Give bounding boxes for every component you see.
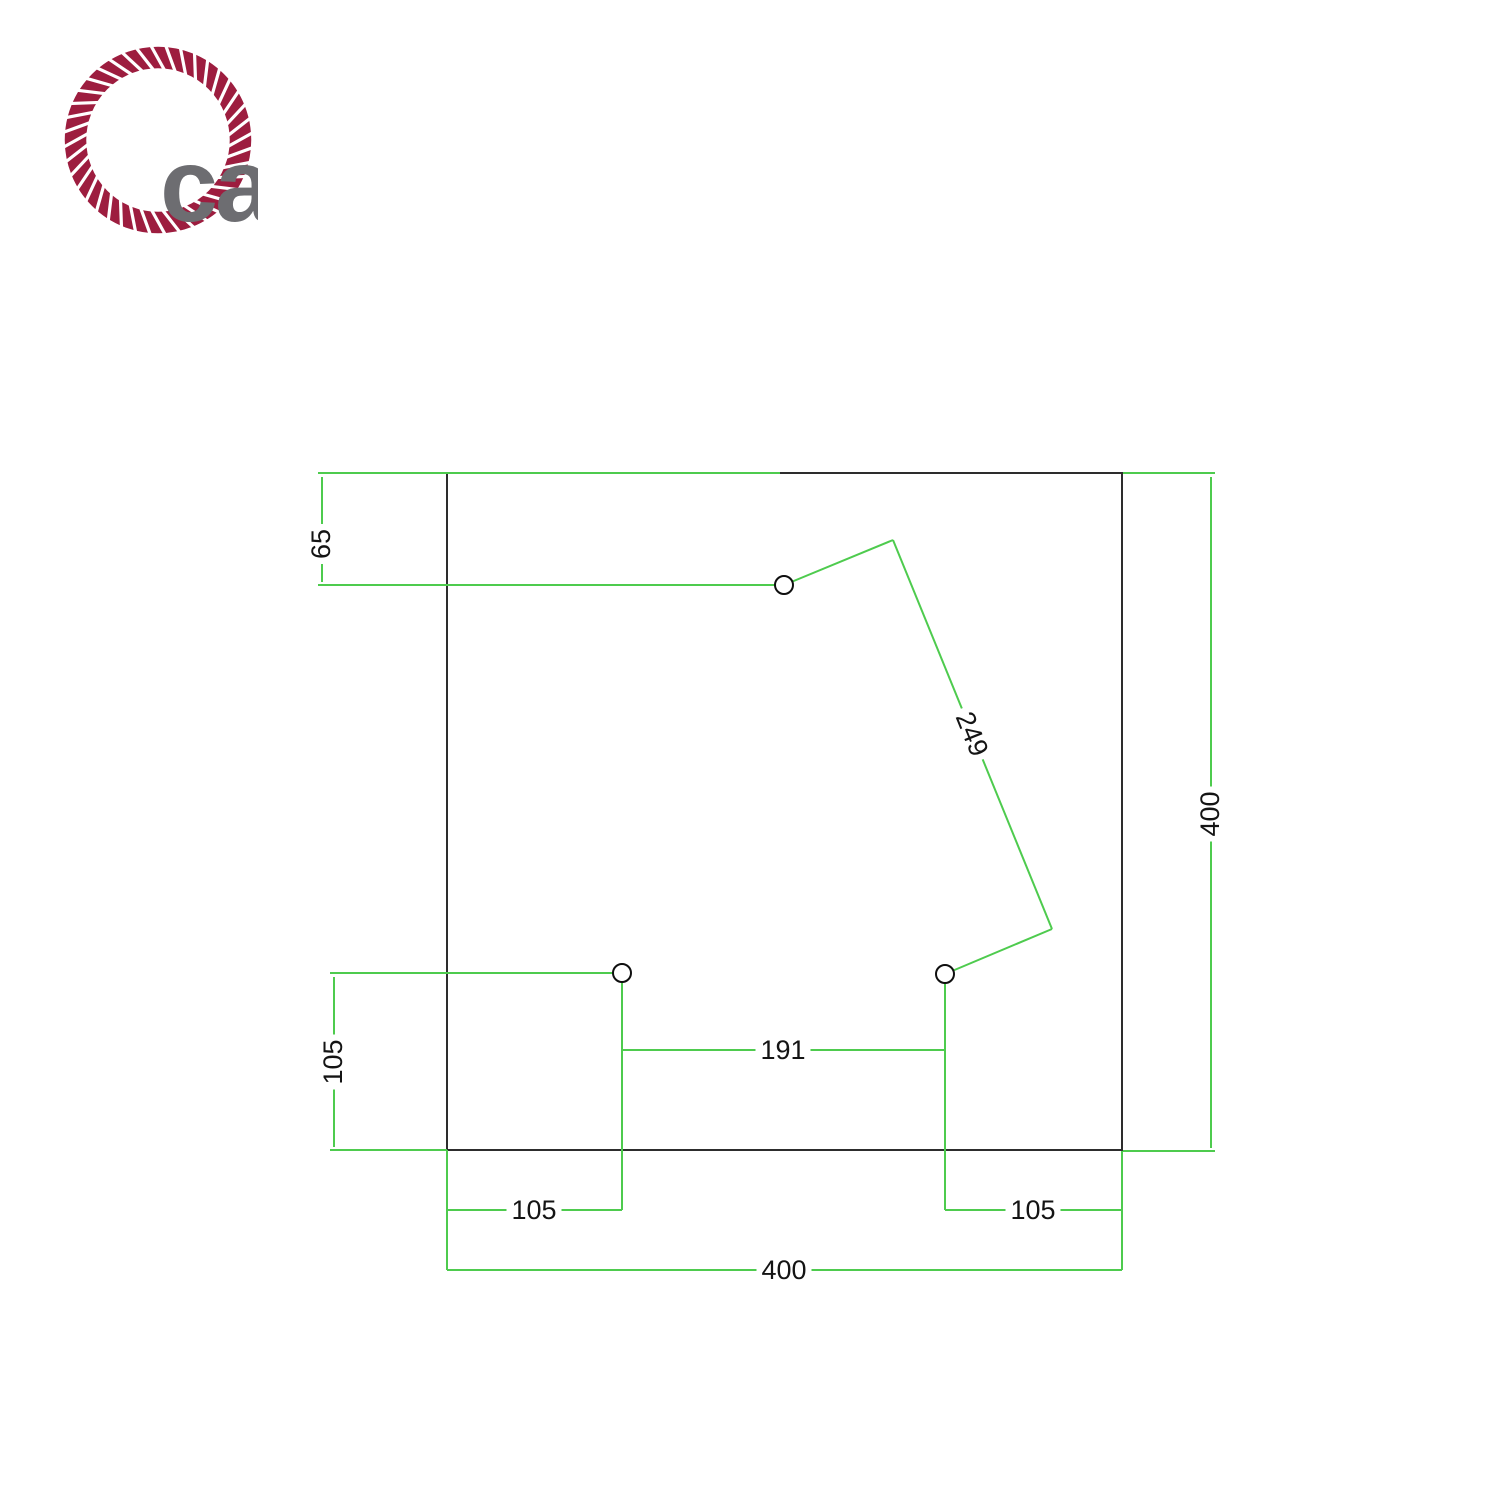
dimension-label: 191 bbox=[760, 1035, 805, 1065]
dimension-label-group: 105 bbox=[1006, 1194, 1061, 1226]
leader-line bbox=[784, 540, 893, 585]
dimension-label-group: 400 bbox=[1194, 787, 1226, 842]
dimension-label-group: 400 bbox=[757, 1254, 812, 1286]
dimension-label: 65 bbox=[306, 529, 336, 559]
dimension-label-group: 191 bbox=[756, 1034, 811, 1066]
hole-marker bbox=[936, 965, 954, 983]
dimension-label: 105 bbox=[511, 1195, 556, 1225]
technical-drawing: 65249400105191105105400 bbox=[0, 0, 1500, 1500]
leader-line bbox=[945, 929, 1052, 974]
dimension-label: 400 bbox=[1195, 791, 1225, 836]
dimension-label: 400 bbox=[761, 1255, 806, 1285]
dimension-label: 105 bbox=[318, 1039, 348, 1084]
dimension-label-group: 105 bbox=[317, 1035, 349, 1090]
hole-marker bbox=[613, 964, 631, 982]
dimension-label-group: 249 bbox=[947, 703, 997, 766]
dimension-label-group: 65 bbox=[305, 524, 337, 564]
dimension-label: 105 bbox=[1010, 1195, 1055, 1225]
hole-marker bbox=[775, 576, 793, 594]
dimension-label-group: 105 bbox=[507, 1194, 562, 1226]
